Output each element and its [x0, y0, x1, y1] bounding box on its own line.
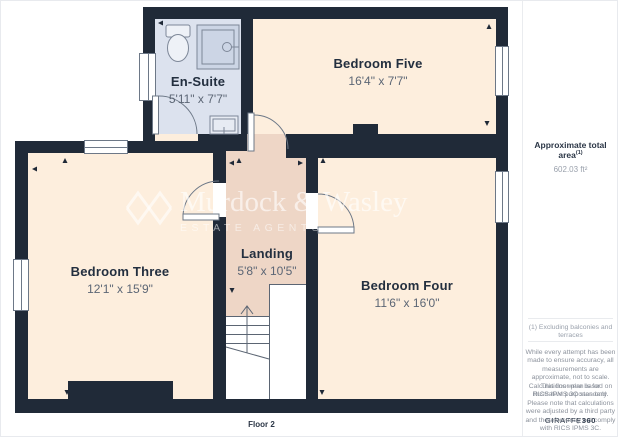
room-name: Bedroom Five: [333, 56, 422, 71]
room-dims: 16'4" x 7'7": [333, 74, 422, 88]
wall-bedroom-three-chimney: [68, 381, 173, 401]
brand-text: GIRAFFE: [545, 416, 582, 425]
sidebar-rule: [528, 341, 613, 342]
window-bedroom-three-left: [13, 259, 29, 311]
wall-bottom: [15, 399, 508, 413]
room-dims: 5'8" x 10'5": [237, 264, 296, 278]
room-label-landing: Landing 5'8" x 10'5": [237, 246, 296, 278]
wall-ensuite-divider: [241, 19, 253, 134]
wall-landing-b4-divider-upper: [306, 158, 318, 193]
floor-label: Floor 2: [1, 420, 522, 429]
window-bedroom-five-right: [495, 46, 509, 96]
room-name: Bedroom Four: [361, 278, 453, 293]
brand-suffix: 360: [582, 416, 596, 425]
room-dims: 11'6" x 16'0": [361, 296, 453, 310]
room-label-bedroom-five: Bedroom Five 16'4" x 7'7": [333, 56, 422, 88]
wall-bedroom-five-bump: [353, 124, 378, 134]
wall-b3-landing-divider-lower: [213, 217, 226, 399]
room-label-ensuite: En-Suite 5'11" x 7'7": [169, 74, 227, 106]
window-mullion: [148, 54, 149, 100]
total-area-block: Approximate total area(1) 602.03 ft²: [522, 140, 618, 174]
total-area-value: 602.03 ft²: [522, 165, 618, 174]
room-label-bedroom-four: Bedroom Four 11'6" x 16'0": [361, 278, 453, 310]
sidebar-rule: [528, 318, 613, 319]
wall-mid-right: [286, 134, 496, 158]
window-mullion: [21, 260, 22, 310]
window-mullion: [502, 47, 503, 95]
sidebar-footnote: (1) Excluding balconies and terraces: [524, 324, 617, 341]
room-dims: 5'11" x 7'7": [169, 92, 227, 106]
room-label-bedroom-three: Bedroom Three 12'1" x 15'9": [71, 264, 170, 296]
sidebar-divider: [522, 1, 523, 437]
window-mullion: [85, 147, 127, 148]
wall-top: [143, 7, 508, 19]
window-ensuite-left: [139, 53, 156, 101]
room-name: Landing: [237, 246, 296, 261]
wall-landing-b4-divider-lower: [306, 229, 318, 399]
window-mullion: [502, 172, 503, 222]
floorplan-page: Murdock & Wasley ESTATE AGENTS En-Suite …: [0, 0, 618, 437]
stairwell-void: [269, 284, 306, 399]
footnote-marker: (1): [576, 150, 583, 156]
sidebar-disclaimer-2: Calculations were based on RICS IPMS 3C …: [525, 383, 616, 433]
wall-b3-landing-divider-upper: [213, 149, 226, 183]
window-bedroom-three-top: [84, 140, 128, 154]
understairs-void: [226, 316, 269, 399]
total-area-label-text: Approximate total area: [534, 140, 606, 160]
giraffe360-logo: GIRAFFE360: [522, 416, 618, 425]
window-bedroom-four-right: [495, 171, 509, 223]
room-name: En-Suite: [169, 74, 227, 89]
total-area-label: Approximate total area(1): [522, 140, 618, 160]
room-name: Bedroom Three: [71, 264, 170, 279]
room-dims: 12'1" x 15'9": [71, 282, 170, 296]
